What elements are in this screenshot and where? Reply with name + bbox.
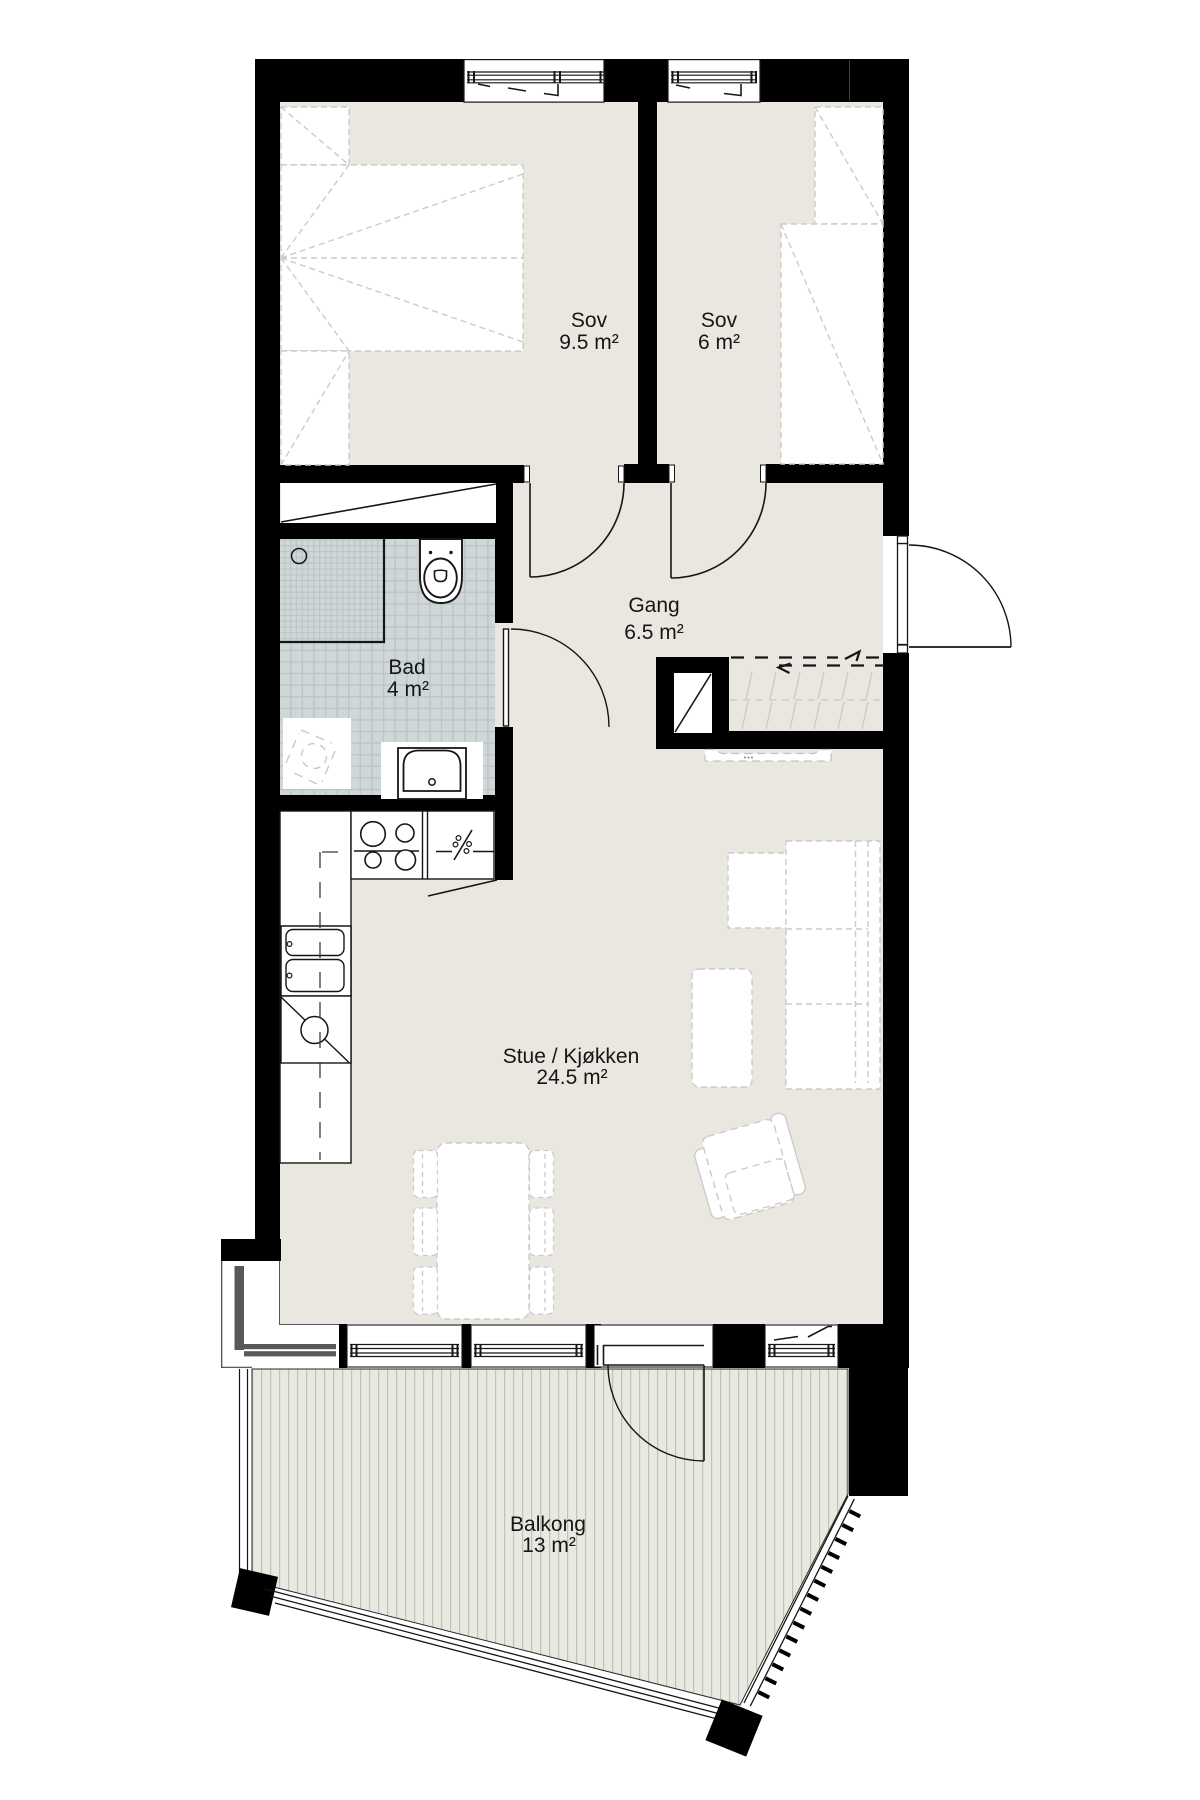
svg-text:Sov: Sov <box>571 309 608 332</box>
svg-text:24.5 m²: 24.5 m² <box>536 1066 607 1089</box>
svg-text:9.5 m²: 9.5 m² <box>559 331 619 354</box>
svg-text:Bad: Bad <box>388 656 425 679</box>
svg-text:Sov: Sov <box>701 309 738 332</box>
svg-text:Gang: Gang <box>628 594 679 617</box>
svg-text:4 m²: 4 m² <box>387 678 429 701</box>
svg-text:6.5 m²: 6.5 m² <box>624 621 684 644</box>
svg-text:6 m²: 6 m² <box>698 331 740 354</box>
svg-text:Stue / Kjøkken: Stue / Kjøkken <box>503 1045 640 1068</box>
svg-text:13 m²: 13 m² <box>522 1534 576 1557</box>
svg-text:Balkong: Balkong <box>510 1513 586 1536</box>
